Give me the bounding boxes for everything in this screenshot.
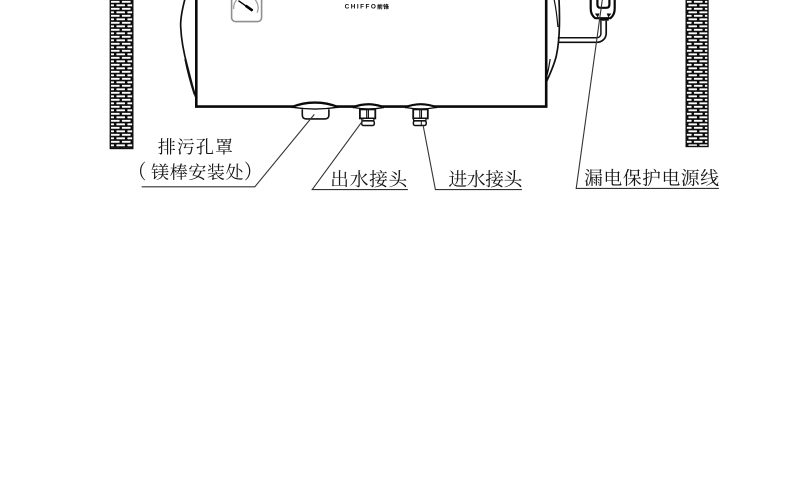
svg-text:CHIFFO: CHIFFO — [345, 4, 378, 11]
